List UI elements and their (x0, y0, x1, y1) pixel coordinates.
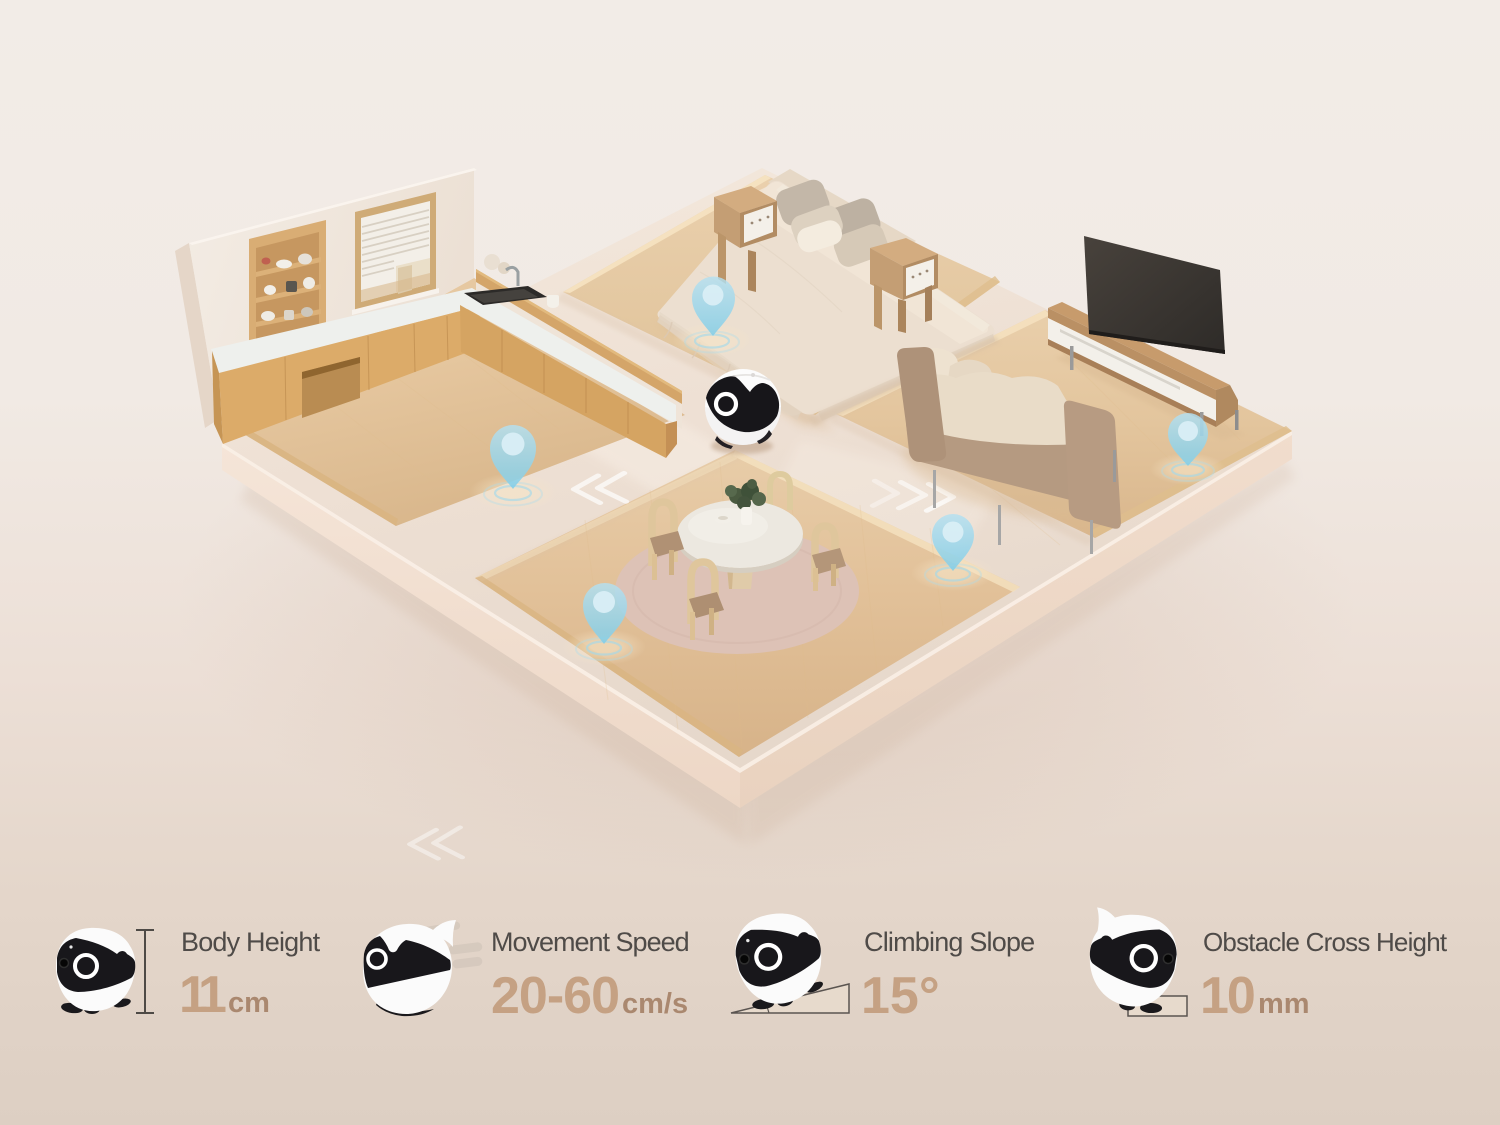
svg-text:15°: 15° (861, 967, 940, 1025)
svg-text:mm: mm (1258, 988, 1310, 1020)
svg-text:cm: cm (228, 987, 270, 1019)
svg-text:20-60: 20-60 (491, 967, 619, 1025)
svg-text:11: 11 (179, 966, 226, 1024)
svg-text:cm/s: cm/s (622, 988, 688, 1020)
svg-text:Body Height: Body Height (181, 927, 321, 957)
svg-text:10: 10 (1200, 967, 1254, 1025)
svg-text:Climbing Slope: Climbing Slope (864, 927, 1034, 957)
svg-text:Obstacle Cross Height: Obstacle Cross Height (1203, 927, 1448, 957)
svg-text:Movement Speed: Movement Speed (491, 927, 689, 957)
